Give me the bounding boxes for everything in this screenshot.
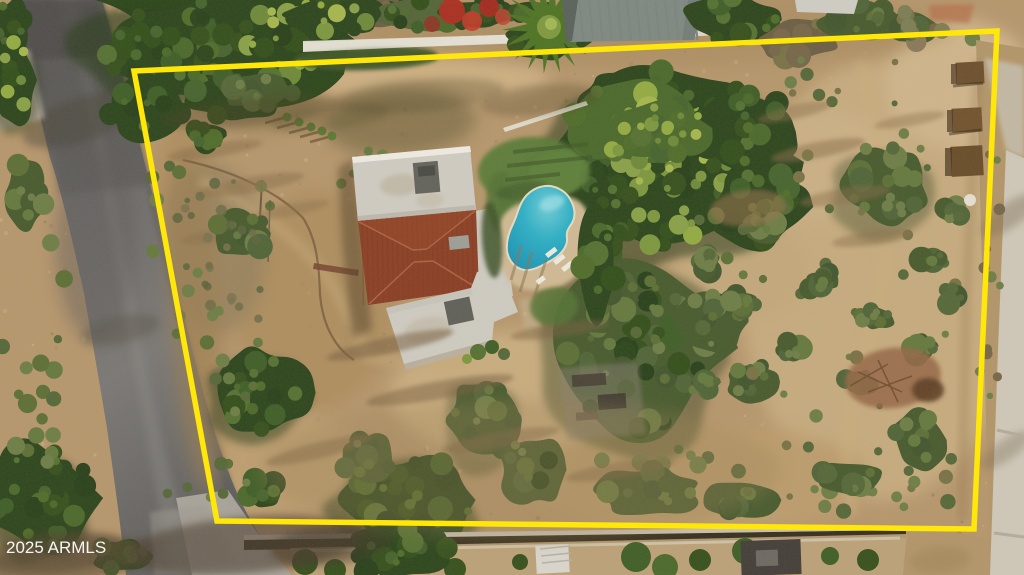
svg-text:2025 ARMLS: 2025 ARMLS [6, 538, 106, 557]
